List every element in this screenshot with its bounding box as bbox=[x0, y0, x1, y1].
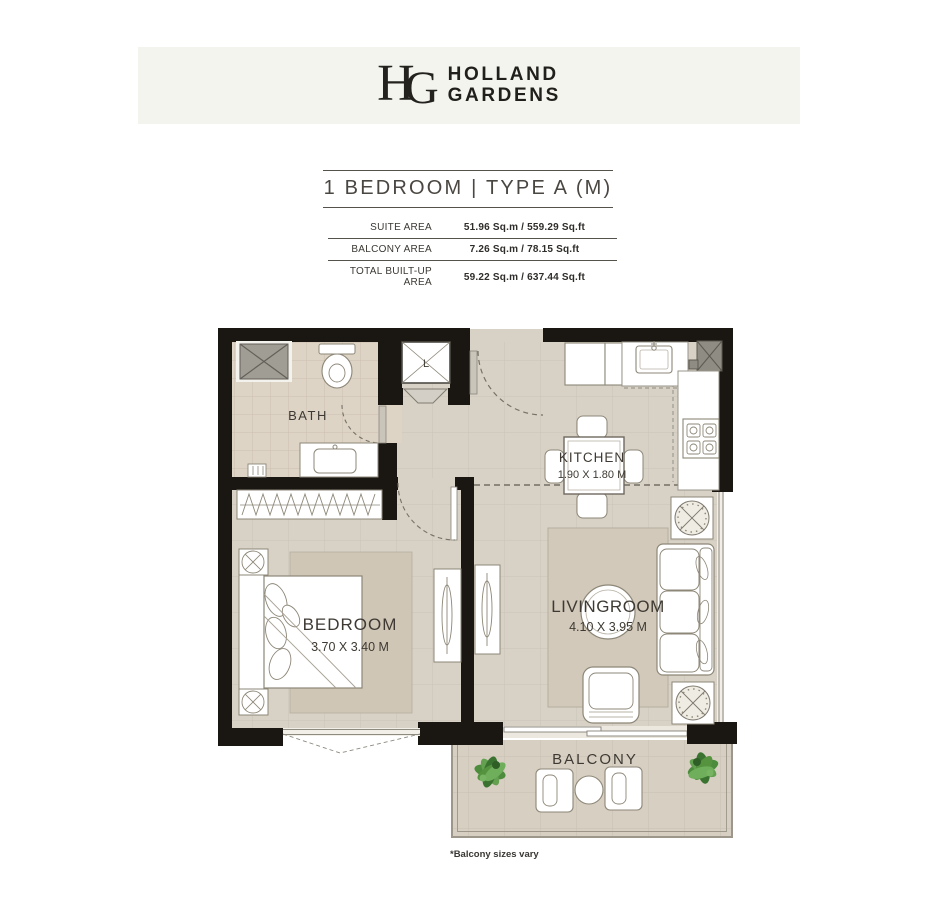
area-row-value: 7.26 Sq.m / 78.15 Sq.ft bbox=[432, 244, 617, 255]
livingroom-label: LIVINGROOM bbox=[551, 597, 665, 616]
stove bbox=[683, 419, 719, 458]
brand-name: HOLLAND GARDENS bbox=[448, 64, 561, 107]
kitchen-dimensions: 1.90 X 1.80 M bbox=[558, 469, 627, 481]
area-row-label: TOTAL BUILT-UP AREA bbox=[328, 266, 432, 288]
area-table: SUITE AREA 51.96 Sq.m / 559.29 Sq.ft BAL… bbox=[328, 217, 617, 293]
nightstand bbox=[239, 549, 268, 575]
service-shaft bbox=[236, 341, 292, 382]
table-row: TOTAL BUILT-UP AREA 59.22 Sq.m / 637.44 … bbox=[328, 260, 617, 293]
bedroom-dimensions: 3.70 X 3.40 M bbox=[311, 640, 389, 654]
brand-name-line2: GARDENS bbox=[448, 85, 561, 106]
sofa bbox=[657, 544, 714, 675]
area-row-label: BALCONY AREA bbox=[328, 244, 432, 255]
header-band: H G HOLLAND GARDENS bbox=[138, 47, 800, 124]
brand-logo: H G HOLLAND GARDENS bbox=[377, 62, 561, 109]
area-row-label: SUITE AREA bbox=[328, 222, 432, 233]
bedroom-window bbox=[283, 728, 420, 753]
wardrobe bbox=[237, 490, 382, 519]
area-row-value: 59.22 Sq.m / 637.44 Sq.ft bbox=[432, 272, 617, 283]
balcony-label: BALCONY bbox=[552, 751, 638, 768]
bath-vanity-sink bbox=[300, 443, 378, 477]
area-row-value: 51.96 Sq.m / 559.29 Sq.ft bbox=[432, 222, 617, 233]
bath-label: BATH bbox=[288, 408, 328, 423]
elevator-label: L bbox=[423, 358, 429, 370]
table-row: SUITE AREA 51.96 Sq.m / 559.29 Sq.ft bbox=[328, 217, 617, 238]
shower-drain bbox=[248, 464, 266, 477]
brand-monogram-icon: H G bbox=[377, 62, 439, 109]
table-row: BALCONY AREA 7.26 Sq.m / 78.15 Sq.ft bbox=[328, 238, 617, 260]
balcony-footnote: *Balcony sizes vary bbox=[450, 849, 539, 860]
armchair bbox=[583, 667, 639, 723]
nightstand bbox=[239, 689, 268, 715]
fridge bbox=[565, 343, 622, 385]
bedroom-label: BEDROOM bbox=[303, 615, 398, 634]
floorplan-page: H G HOLLAND GARDENS 1 BEDROOM | TYPE A (… bbox=[0, 0, 952, 900]
livingroom-dimensions: 4.10 X 3.95 M bbox=[569, 620, 647, 634]
bedroom-console bbox=[434, 569, 461, 662]
livingroom-window bbox=[717, 492, 724, 722]
brand-name-line1: HOLLAND bbox=[448, 64, 561, 85]
balcony-chair bbox=[536, 769, 573, 812]
unit-title: 1 BEDROOM | TYPE A (M) bbox=[323, 170, 613, 208]
floorplan-drawing: BALCONY bbox=[210, 320, 745, 850]
balcony-sliding-door bbox=[503, 726, 687, 738]
livingroom-console bbox=[475, 565, 500, 654]
balcony-table bbox=[575, 776, 603, 804]
livingroom-plant-icon bbox=[672, 682, 714, 724]
livingroom-plant-icon bbox=[671, 497, 713, 539]
balcony-chair bbox=[605, 767, 642, 810]
monogram-g: G bbox=[405, 67, 439, 109]
elevator: L bbox=[402, 342, 450, 403]
kitchen-label: KITCHEN bbox=[559, 450, 625, 465]
